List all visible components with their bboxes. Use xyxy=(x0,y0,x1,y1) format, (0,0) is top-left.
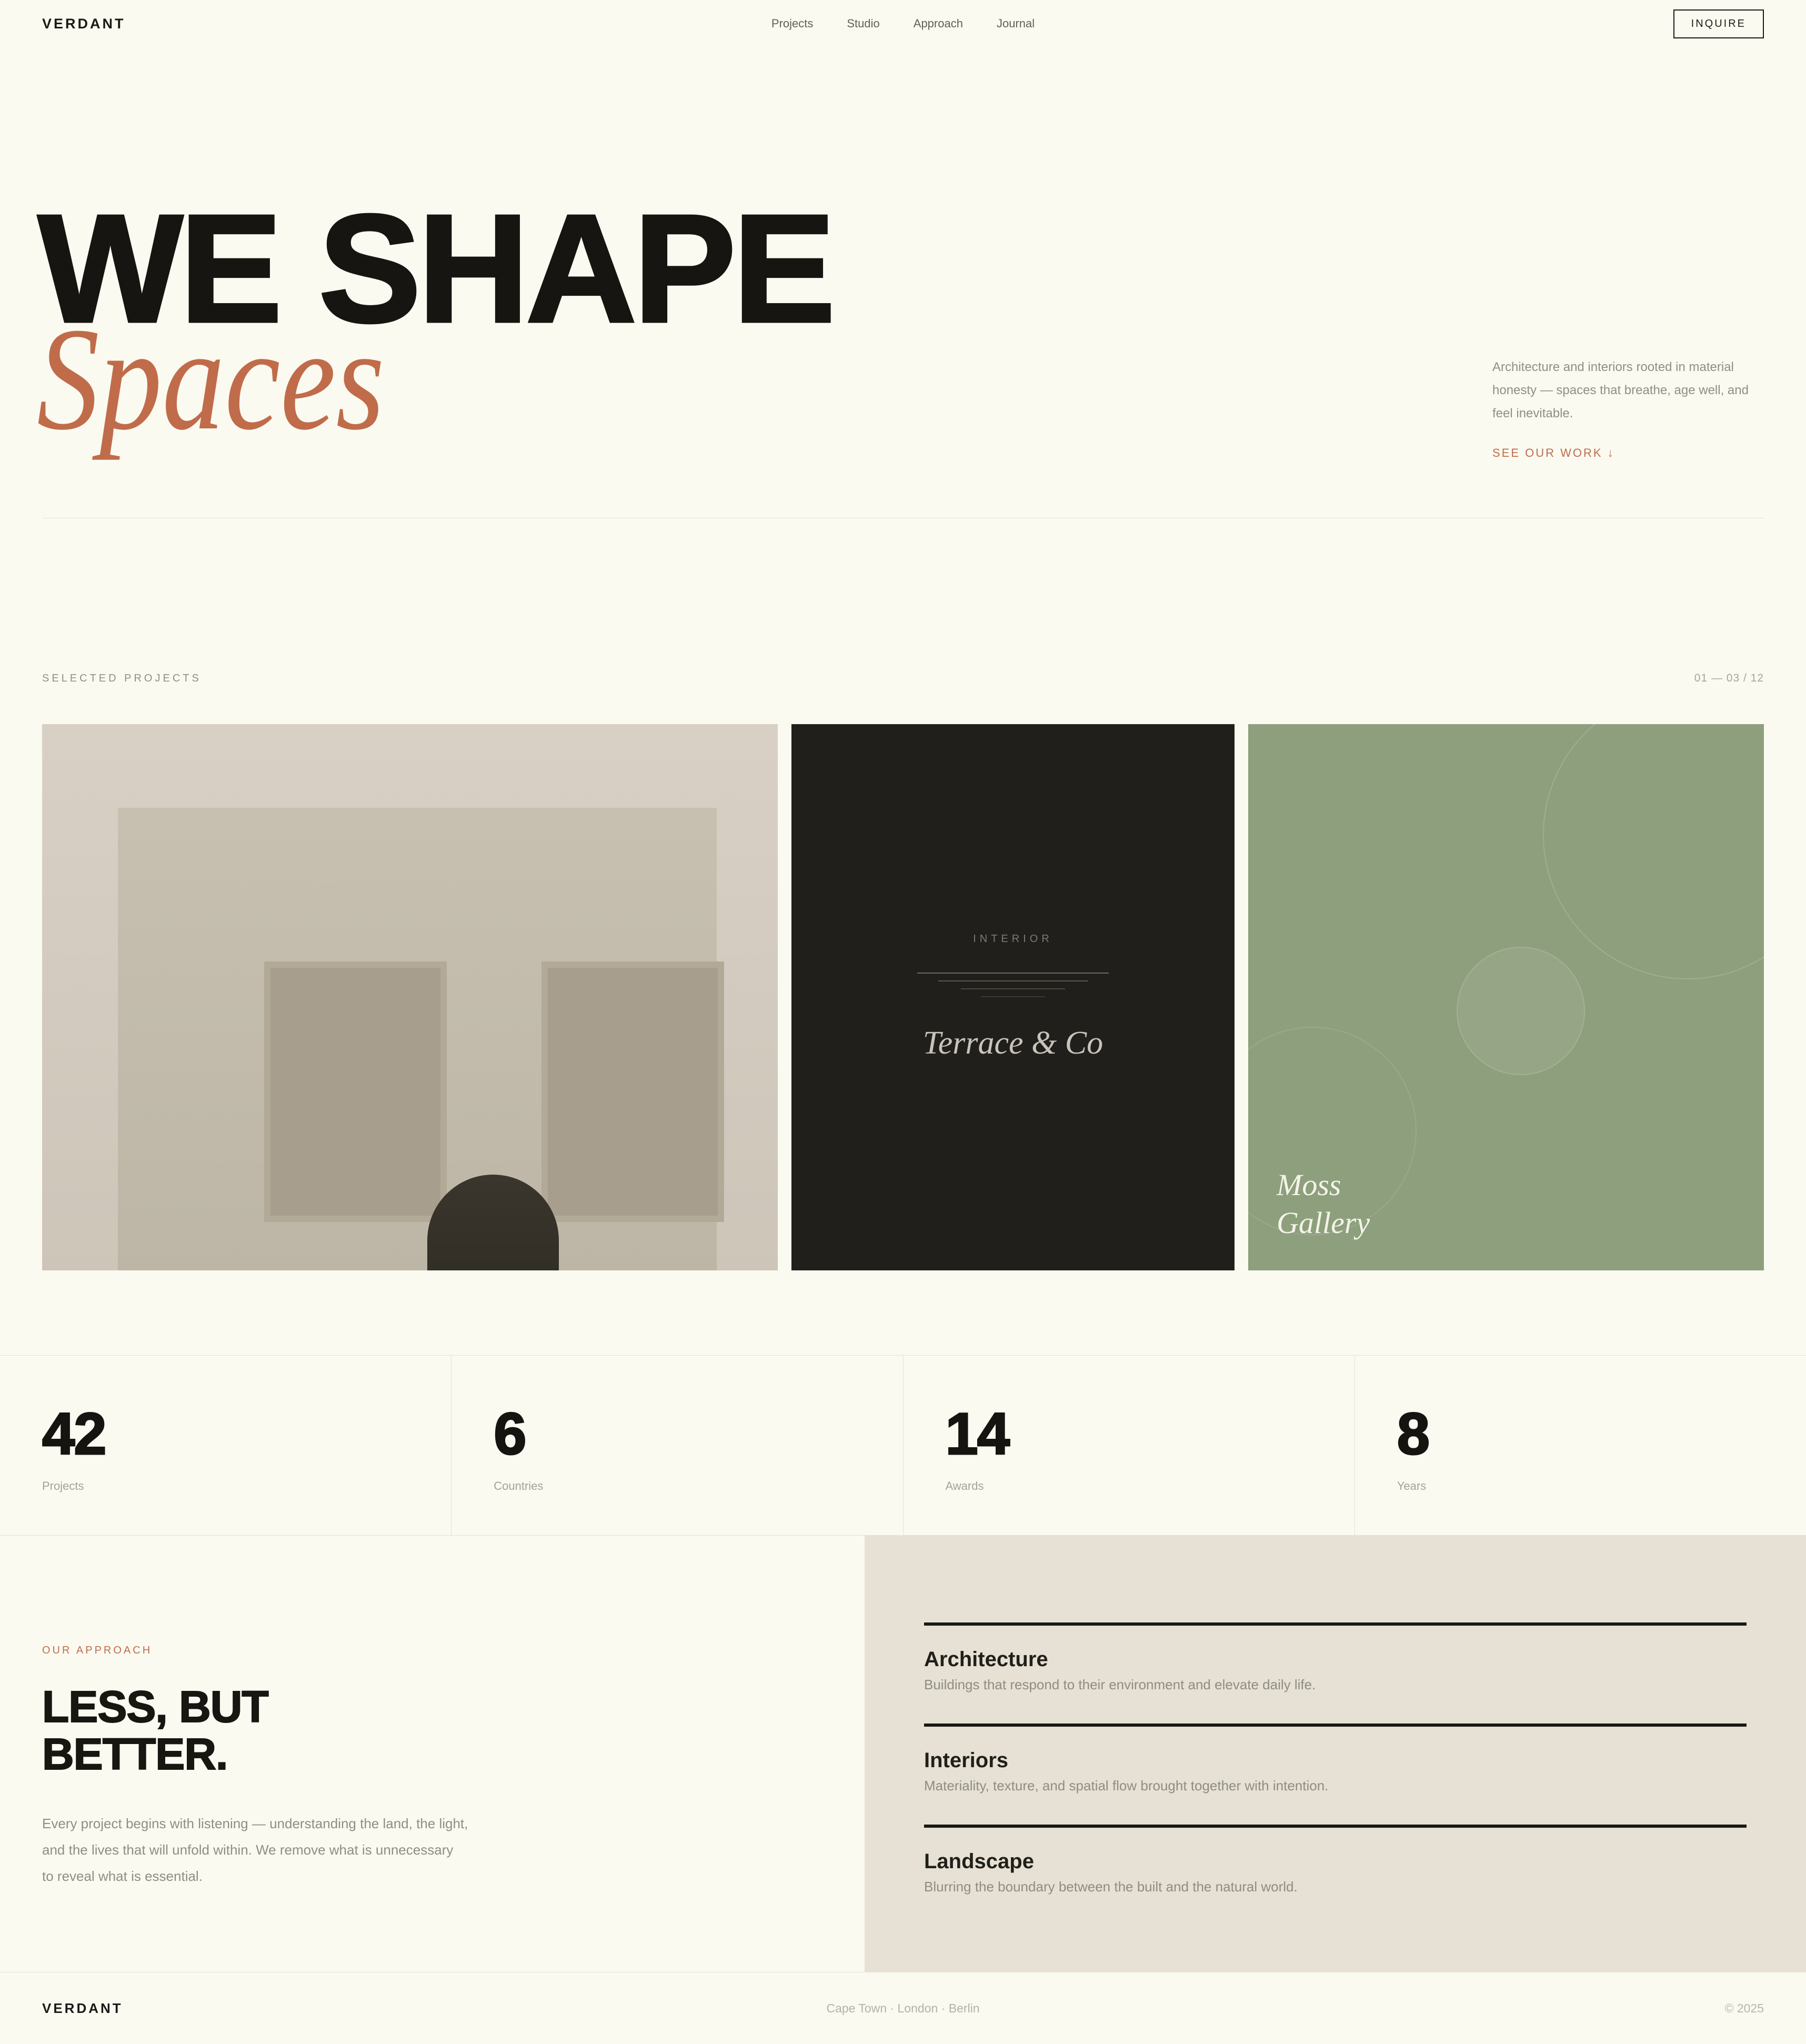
nav-item-studio[interactable]: Studio xyxy=(847,17,879,31)
facade-window-left xyxy=(264,961,447,1222)
brand-logo[interactable]: VERDANT xyxy=(42,16,126,32)
project-category-label: INTERIOR xyxy=(973,933,1053,945)
facade-window-right xyxy=(541,961,724,1222)
service-landscape[interactable]: Landscape Blurring the boundary between … xyxy=(924,1825,1747,1895)
see-our-work-link[interactable]: SEE OUR WORK ↓ xyxy=(1492,446,1615,460)
stats-section: 42 Projects 6 Countries 14 Awards 8 Year… xyxy=(0,1355,1806,1536)
project-title: Terrace & Co xyxy=(923,1025,1103,1062)
approach-body: Every project begins with listening — un… xyxy=(42,1810,468,1889)
stat-years: 8 Years xyxy=(1354,1356,1806,1535)
service-title: Landscape xyxy=(924,1850,1747,1873)
stat-value: 42 xyxy=(42,1405,451,1464)
hero-title-line2: Spaces xyxy=(37,305,385,453)
hero-description: Architecture and interiors rooted in mat… xyxy=(1492,356,1764,425)
service-description: Buildings that respond to their environm… xyxy=(924,1676,1747,1693)
stat-label: Projects xyxy=(42,1479,451,1493)
stat-value: 8 xyxy=(1397,1405,1806,1464)
circle-decoration-large xyxy=(1543,724,1764,979)
selected-projects-section: SELECTED PROJECTS 01 — 03 / 12 INTERIOR … xyxy=(0,518,1806,1355)
footer: VERDANT Cape Town · London · Berlin © 20… xyxy=(0,1972,1806,2044)
stat-projects: 42 Projects xyxy=(0,1356,451,1535)
stat-awards: 14 Awards xyxy=(903,1356,1354,1535)
footer-copyright: © 2025 xyxy=(1724,2001,1764,2016)
hero-divider xyxy=(42,518,1764,518)
main-nav: Projects Studio Approach Journal xyxy=(771,17,1035,31)
hero-intro: Architecture and interiors rooted in mat… xyxy=(1492,356,1764,460)
project-counter: 01 — 03 / 12 xyxy=(1694,672,1764,685)
approach-intro: OUR APPROACH LESS, BUT BETTER. Every pro… xyxy=(0,1536,865,1972)
stat-label: Countries xyxy=(494,1479,902,1493)
stat-value: 6 xyxy=(494,1405,902,1464)
approach-eyebrow: OUR APPROACH xyxy=(42,1645,865,1657)
stat-countries: 6 Countries xyxy=(451,1356,902,1535)
project-card-facade[interactable] xyxy=(42,724,778,1270)
project-title: Moss Gallery xyxy=(1277,1166,1370,1242)
service-architecture[interactable]: Architecture Buildings that respond to t… xyxy=(924,1622,1747,1693)
service-interiors[interactable]: Interiors Materiality, texture, and spat… xyxy=(924,1724,1747,1794)
facade-door-arch xyxy=(427,1175,559,1270)
services-panel: Architecture Buildings that respond to t… xyxy=(865,1536,1806,1972)
hero-section: WE SHAPE Spaces Architecture and interio… xyxy=(0,47,1806,518)
nav-item-approach[interactable]: Approach xyxy=(914,17,963,31)
footer-brand: VERDANT xyxy=(42,2000,123,2017)
projects-header-row: SELECTED PROJECTS 01 — 03 / 12 xyxy=(42,672,1764,685)
nav-item-journal[interactable]: Journal xyxy=(997,17,1035,31)
stat-label: Awards xyxy=(946,1479,1354,1493)
stat-label: Years xyxy=(1397,1479,1806,1493)
footer-locations: Cape Town · London · Berlin xyxy=(826,2001,979,2016)
nav-item-projects[interactable]: Projects xyxy=(771,17,813,31)
approach-heading: LESS, BUT BETTER. xyxy=(42,1683,865,1778)
service-title: Architecture xyxy=(924,1648,1747,1671)
inquire-button[interactable]: INQUIRE xyxy=(1673,9,1764,38)
project-card-terrace[interactable]: INTERIOR Terrace & Co xyxy=(791,724,1235,1270)
stat-value: 14 xyxy=(946,1405,1354,1464)
service-title: Interiors xyxy=(924,1749,1747,1772)
approach-section: OUR APPROACH LESS, BUT BETTER. Every pro… xyxy=(0,1536,1806,1972)
service-description: Materiality, texture, and spatial flow b… xyxy=(924,1777,1747,1794)
circle-decoration-filled xyxy=(1457,947,1585,1075)
section-label: SELECTED PROJECTS xyxy=(42,673,202,685)
facade-illustration xyxy=(118,808,717,1270)
service-description: Blurring the boundary between the built … xyxy=(924,1878,1747,1895)
terrace-lines-icon xyxy=(917,973,1109,997)
project-card-moss-gallery[interactable]: Moss Gallery xyxy=(1248,724,1764,1270)
project-cards: INTERIOR Terrace & Co Moss Gallery xyxy=(42,724,1764,1270)
header: VERDANT Projects Studio Approach Journal… xyxy=(0,0,1806,47)
